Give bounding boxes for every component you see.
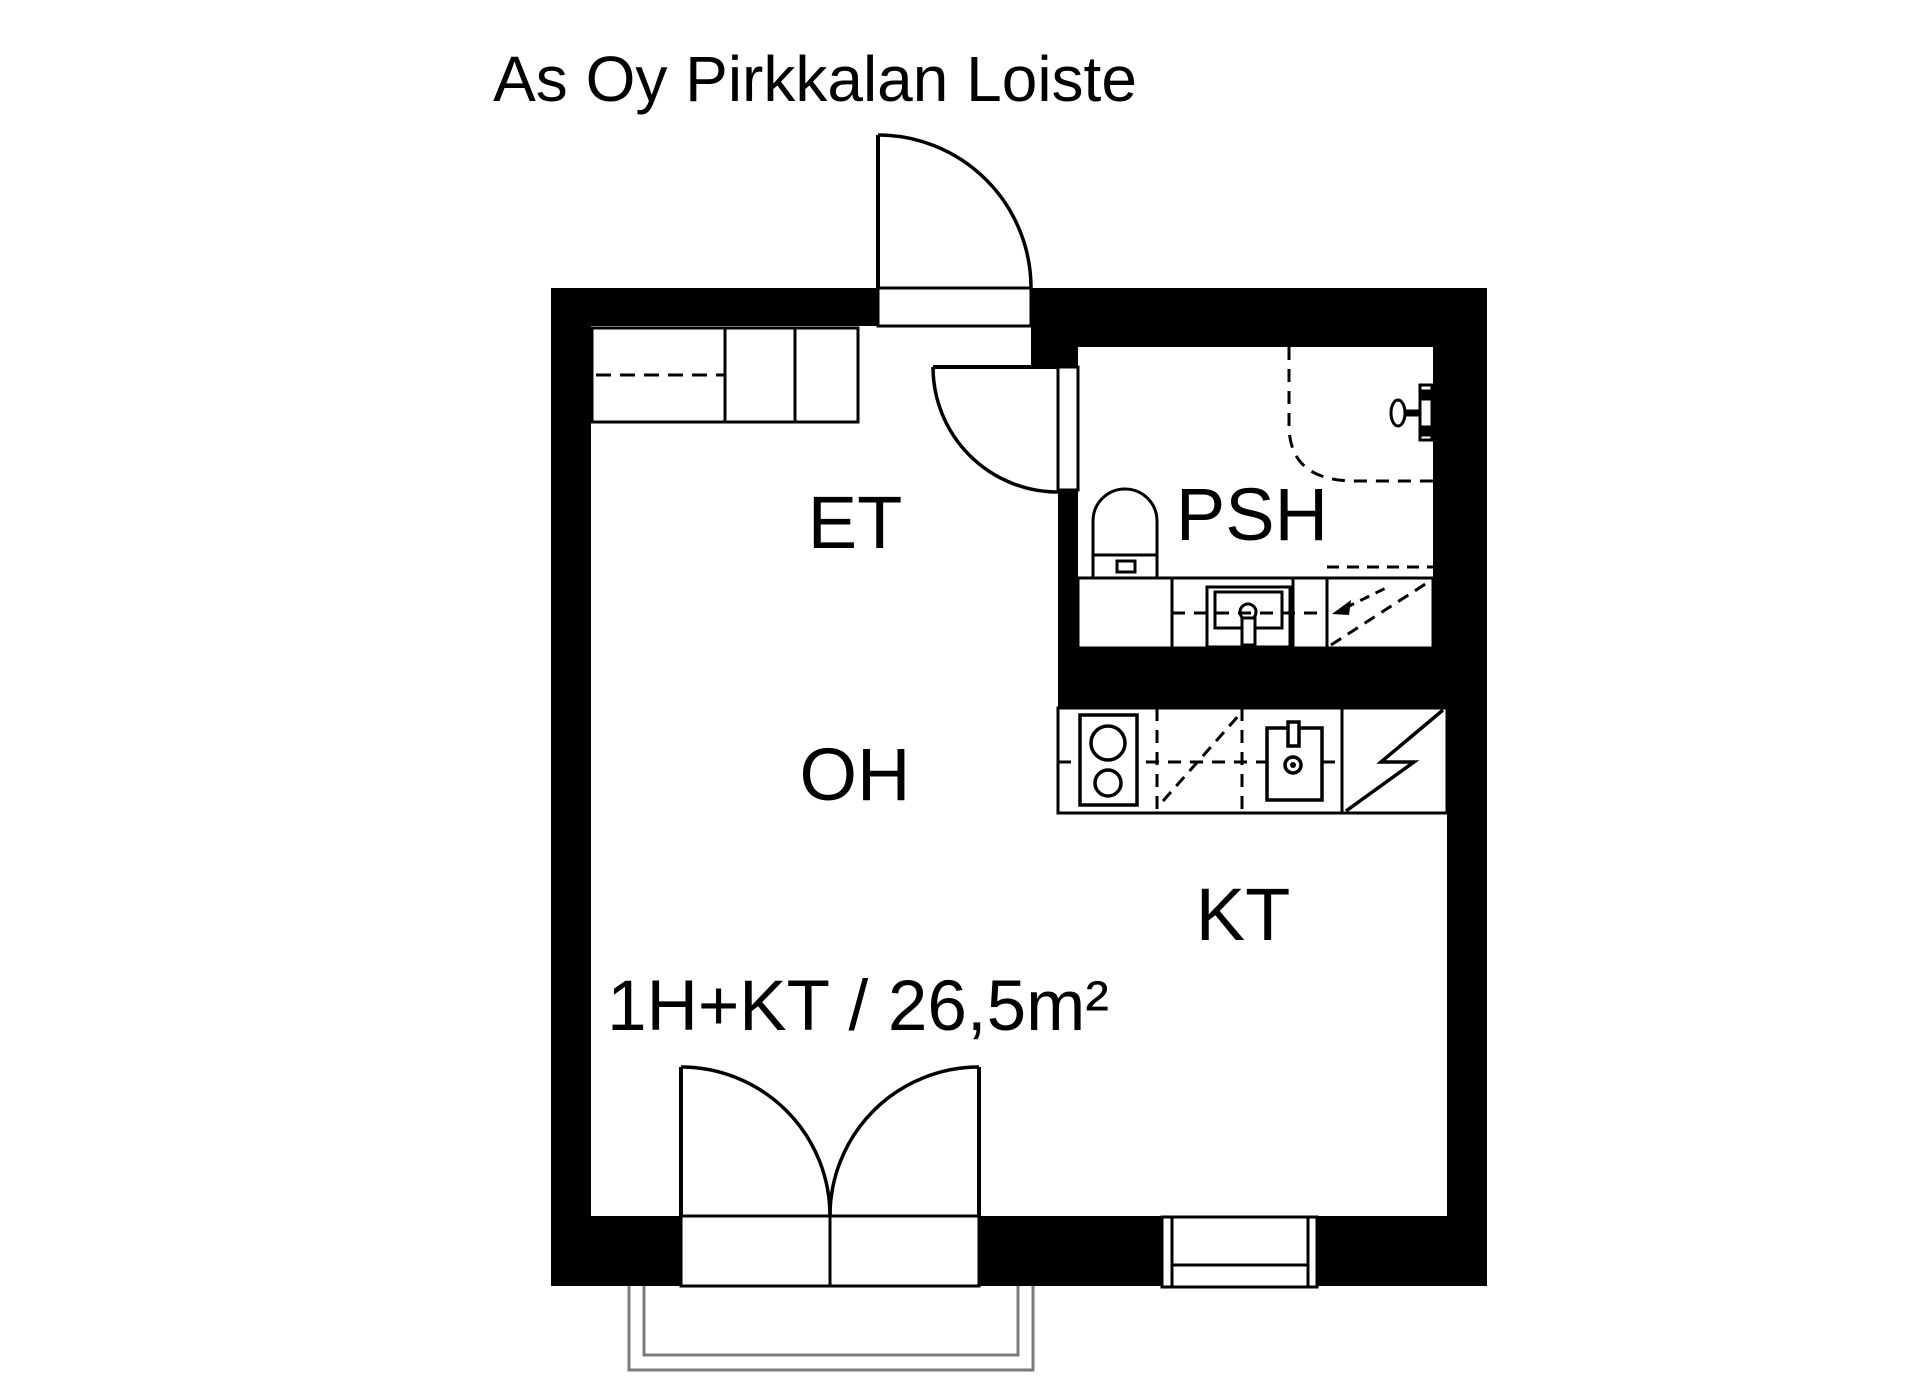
shower-mixer-tick-bottom <box>1420 427 1432 435</box>
bathroom-sink-faucet-stem <box>1242 618 1255 645</box>
wardrobe-icon <box>592 328 858 422</box>
toilet-flush-button <box>1117 561 1135 572</box>
room-label-et: ET <box>808 481 903 564</box>
page-background <box>0 0 1920 1379</box>
wall-right-bathroom-extra <box>1433 347 1449 648</box>
wall-bathroom-kitchen-divider <box>1058 648 1450 708</box>
kitchen-sink-drain-inner <box>1290 762 1296 768</box>
toilet-icon <box>1093 489 1157 578</box>
wall-left <box>551 288 591 1286</box>
window-opening <box>1162 1217 1317 1287</box>
bathroom-vanity-sink-icon <box>1078 578 1433 648</box>
wall-bottom-right <box>1317 1216 1487 1286</box>
room-label-psh: PSH <box>1176 473 1328 556</box>
wall-top-door-jamb <box>1031 288 1078 367</box>
room-label-oh: OH <box>800 733 911 816</box>
stove-icon <box>1080 715 1137 805</box>
floor-plan-drawing: As Oy Pirkkalan Loiste ET PSH OH KT 1H+K… <box>0 0 1920 1379</box>
window-icon <box>1162 1217 1317 1287</box>
kitchen-sink-icon <box>1267 722 1322 800</box>
apartment-area-label: 1H+KT / 26,5m² <box>607 967 1109 1046</box>
shower-mixer-tick-top <box>1420 391 1432 399</box>
wall-right <box>1447 288 1487 1286</box>
wall-bottom-left <box>551 1216 681 1286</box>
entrance-door-threshold <box>878 288 1031 326</box>
room-label-kt: KT <box>1196 873 1291 956</box>
kitchen-sink-faucet <box>1288 722 1299 746</box>
toilet-bowl <box>1093 489 1157 556</box>
wall-bottom-middle <box>979 1216 1162 1286</box>
wall-top-over-bathroom <box>1078 288 1487 347</box>
floor-plan-page: As Oy Pirkkalan Loiste ET PSH OH KT 1H+K… <box>0 0 1920 1379</box>
bathroom-door-jamb <box>1058 367 1078 490</box>
shower-mixer-handle <box>1391 400 1405 426</box>
plan-title: As Oy Pirkkalan Loiste <box>493 43 1137 115</box>
wall-top-left <box>551 288 878 326</box>
